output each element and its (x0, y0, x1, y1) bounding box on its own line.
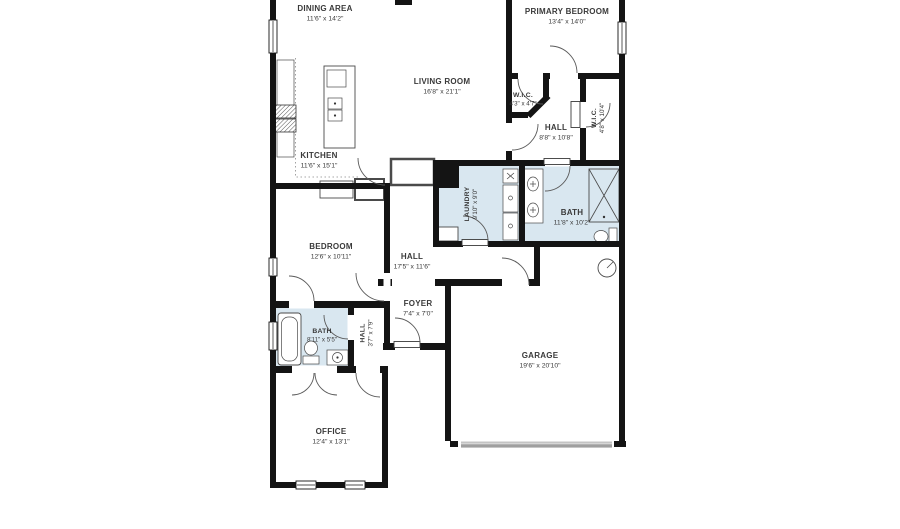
room-dims: 9'10" x 9'0" (472, 189, 479, 220)
room-dims: 4'8" x 10'4" (599, 103, 606, 134)
room-label-primary-bedroom: PRIMARY BEDROOM 13'4" x 14'0" (525, 7, 609, 26)
appliance-icon (275, 119, 296, 132)
room-name: W.I.C. (591, 108, 598, 128)
dryer-icon (503, 213, 518, 240)
floorplan-drawing: DINING AREA 11'6" x 14'2" PRIMARY BEDROO… (0, 0, 900, 529)
room-name: PRIMARY BEDROOM (525, 7, 609, 16)
door-arc (356, 373, 380, 397)
room-name: FOYER (404, 299, 433, 308)
appliance-icon (275, 105, 296, 118)
door-arc (356, 273, 384, 301)
window-icon (269, 20, 277, 53)
room-dims: 12'6" x 10'11" (311, 254, 352, 261)
room-name: HALL (360, 323, 367, 342)
room-name: OFFICE (316, 427, 347, 436)
door-arc (395, 318, 420, 343)
door-arc (292, 373, 314, 395)
room-label-wic-1: W.I.C. 4'3" x 4'7" (509, 92, 536, 108)
room-dims: 16'8" x 21'1" (423, 89, 461, 96)
window-icon (269, 322, 277, 350)
room-dims: 11'6" x 14'2" (307, 16, 344, 23)
garage-door (458, 441, 614, 448)
room-label-dining-area: DINING AREA 11'6" x 14'2" (297, 4, 352, 23)
room-label-hall-3: HALL 3'7" x 7'9" (360, 319, 375, 346)
room-dims: 19'6" x 20'10" (519, 363, 561, 370)
room-label-garage: GARAGE 19'6" x 20'10" (519, 351, 561, 370)
door-arc (315, 373, 337, 395)
door-arc (550, 46, 577, 73)
room-label-bedroom: BEDROOM 12'6" x 10'11" (309, 242, 353, 261)
room-dims: 11'8" x 10'2" (554, 220, 591, 227)
room-label-office: OFFICE 12'4" x 13'1" (312, 427, 350, 446)
room-name: GARAGE (522, 351, 559, 360)
room-label-hall-main: HALL 17'5" x 11'6" (394, 252, 431, 271)
room-dims: 4'3" x 4'7" (509, 101, 536, 108)
room-dims: 3'7" x 7'9" (368, 319, 375, 346)
room-dims: 7'4" x 7'0" (403, 311, 433, 318)
door-arc (512, 124, 538, 150)
room-dims: 8'8" x 10'8" (539, 135, 573, 142)
water-heater-icon (598, 259, 616, 277)
floorplan-page: DINING AREA 11'6" x 14'2" PRIMARY BEDROO… (0, 0, 900, 529)
room-name: DINING AREA (297, 4, 352, 13)
pantry-closet (391, 159, 434, 185)
room-label-laundry: LAUNDRY 9'10" x 9'0" (464, 186, 479, 221)
kitchen-island (324, 66, 355, 148)
room-name: KITCHEN (300, 151, 337, 160)
room-dims: 8'11" x 5'5" (307, 337, 337, 344)
cabinet (436, 227, 458, 241)
bathtub-icon (278, 313, 301, 365)
room-label-hall-upper: HALL 8'8" x 10'8" (539, 123, 573, 142)
room-name: BATH (312, 328, 331, 335)
closet (355, 179, 384, 200)
room-name: HALL (401, 252, 423, 261)
room-dims: 12'4" x 13'1" (312, 439, 350, 446)
window-icon (296, 481, 316, 489)
room-label-living-room: LIVING ROOM 16'8" x 21'1" (414, 77, 471, 96)
room-name: HALL (545, 123, 567, 132)
door-arc (586, 103, 610, 127)
washer-icon (503, 185, 518, 212)
room-dims: 13'4" x 14'0" (548, 19, 586, 26)
room-name: LAUNDRY (464, 186, 471, 221)
room-dims: 17'5" x 11'6" (394, 264, 431, 271)
room-dims: 11'6" x 15'1" (301, 163, 338, 170)
room-name: W.I.C. (513, 92, 533, 99)
room-name: BATH (561, 208, 584, 217)
window-icon (345, 481, 365, 489)
door-arc (289, 276, 314, 301)
window-icon (269, 258, 277, 276)
room-name: BEDROOM (309, 242, 353, 251)
room-name: LIVING ROOM (414, 77, 471, 86)
vanity-sink-icon (327, 350, 348, 365)
room-label-wic-2: W.I.C. 4'8" x 10'4" (591, 103, 606, 134)
window-icon (618, 22, 626, 54)
room-label-foyer: FOYER 7'4" x 7'0" (403, 299, 433, 318)
room-label-kitchen: KITCHEN 11'6" x 15'1" (300, 151, 338, 170)
kitchen-fixtures (275, 58, 434, 200)
